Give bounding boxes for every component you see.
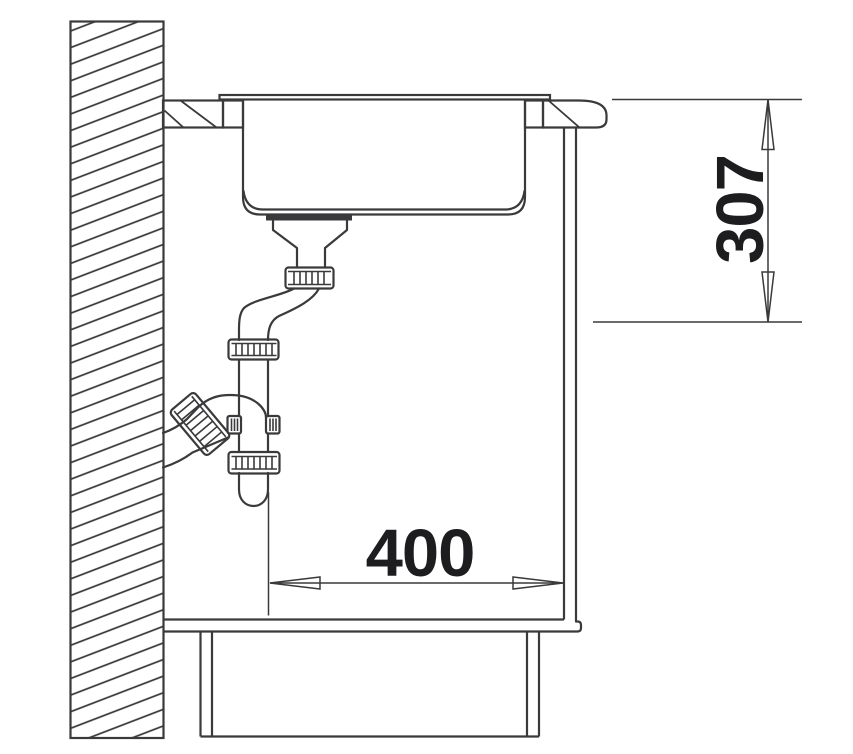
u-bend (239, 473, 268, 506)
sink-bowl-inner (244, 191, 525, 210)
dimension-307: 307 (593, 100, 802, 323)
standpipe (239, 360, 268, 453)
sink-section-diagram: 307 400 (0, 0, 853, 754)
countertop-left-piece (163, 101, 223, 128)
drain-funnel (273, 221, 297, 268)
countertop-left-hatch (165, 111, 184, 128)
countertop-right-hatch (549, 101, 580, 128)
plinth-left-edge (201, 632, 213, 737)
cabinet-bottom-corner-notch (576, 622, 581, 632)
drain-trap-assembly (163, 221, 347, 507)
dim-307-label: 307 (703, 155, 778, 264)
sink-flange (220, 95, 551, 100)
plinth-right-edge (527, 632, 539, 737)
plinth (201, 632, 540, 737)
sink-basin (220, 95, 551, 221)
drawing-root: 307 400 (71, 22, 803, 739)
tailpiece-nut (286, 268, 334, 289)
union-collar-right (266, 416, 280, 434)
wall-outlet-nut (169, 392, 231, 457)
countertop (163, 101, 607, 128)
technical-drawing-page: 307 400 (0, 0, 853, 754)
dim-400-label: 400 (366, 516, 475, 591)
trap-inlet-nut (229, 340, 279, 360)
union-collar-left (228, 416, 242, 434)
drain-funnel (325, 221, 347, 268)
trap-lower-nut (229, 452, 280, 474)
wall-section (71, 22, 164, 739)
sink-rim-left (223, 101, 243, 128)
countertop-left-hatch (181, 101, 217, 128)
drain-strainer-flange (266, 214, 352, 221)
dimension-400: 400 (269, 492, 564, 616)
cabinet (163, 128, 581, 737)
s-bend-pipe (239, 289, 294, 341)
sink-rim-right (525, 101, 543, 128)
sink-bowl-outer (243, 101, 525, 215)
